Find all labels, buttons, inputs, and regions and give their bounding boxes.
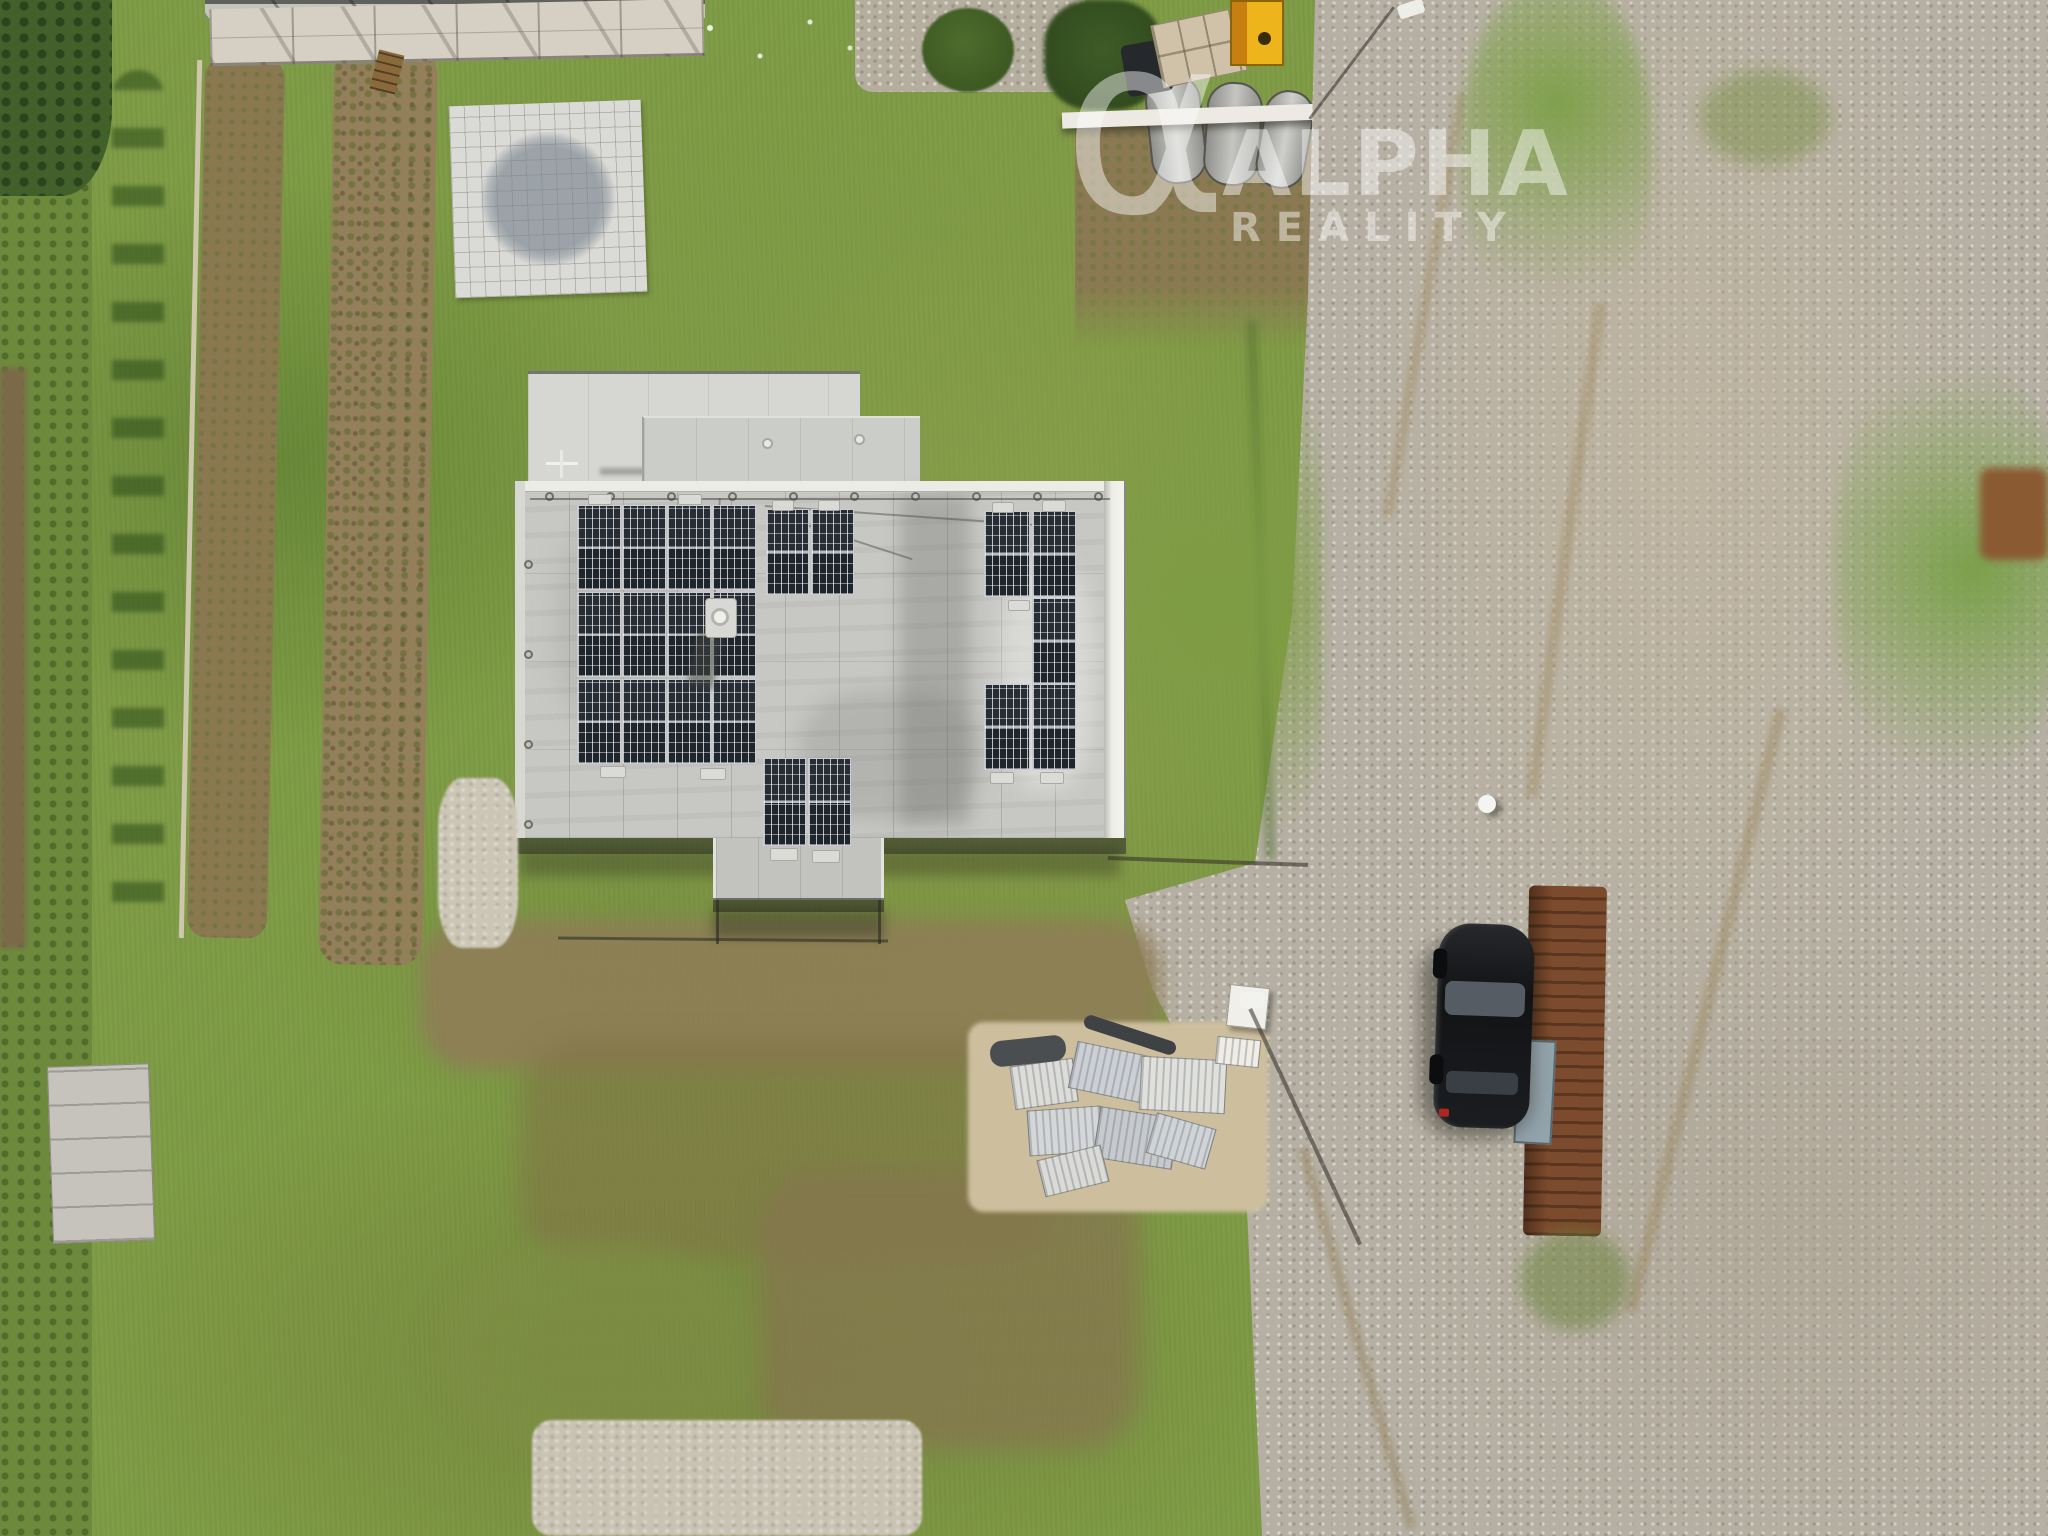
- dirt-strip-left-edge: [0, 368, 26, 948]
- solar-panel: [577, 679, 621, 764]
- flower-dots-top: [700, 8, 870, 78]
- white-slab-piece: [1215, 1036, 1262, 1068]
- panel-bracket: [812, 850, 840, 863]
- grass-strip-east-of-house: [1110, 320, 1322, 880]
- dirt-planting-band-2: [318, 49, 438, 966]
- roof-parapet-top: [515, 481, 1126, 492]
- roof-anchor: [524, 820, 533, 829]
- bush-top-center: [922, 8, 1014, 92]
- solar-panel: [622, 679, 666, 764]
- panel-bracket: [678, 494, 702, 505]
- car-windshield: [1444, 981, 1525, 1018]
- roof-vent-dot-1: [762, 438, 773, 449]
- solar-panel: [622, 592, 666, 677]
- panel-bracket: [992, 502, 1014, 513]
- solar-panel: [667, 679, 711, 764]
- wall-edge-line-right: [878, 900, 881, 944]
- watermark-title: ALPHA: [1222, 120, 1570, 210]
- roof-anchor: [524, 740, 533, 749]
- dirt-planting-band-1: [187, 57, 285, 938]
- panel-bracket: [770, 848, 798, 861]
- solar-panel: [577, 592, 621, 677]
- solar-panel: [667, 505, 711, 590]
- gravel-drain-west-of-house: [438, 778, 518, 948]
- hedge-top-left: [0, 0, 112, 196]
- solar-panel: [1032, 511, 1076, 597]
- roof-protrusion-bottom: [713, 838, 884, 900]
- shrub-row: [112, 70, 164, 940]
- solar-panel: [808, 758, 851, 846]
- weed-blob-below-rust: [1520, 1230, 1630, 1330]
- solar-panel: [1032, 684, 1076, 770]
- solar-panel: [766, 509, 809, 595]
- antenna-mast: [560, 450, 563, 478]
- roof-anchor: [524, 650, 533, 659]
- lamp-head-bottom: [1240, 992, 1264, 1008]
- weed-blob-road-top: [1700, 70, 1830, 165]
- solar-panel: [622, 505, 666, 590]
- watermark-alpha-symbol: α: [1062, 0, 1228, 252]
- gravel-patch-bottom: [532, 1420, 922, 1536]
- satellite-dish-dot: [1478, 795, 1496, 813]
- panel-bracket: [1042, 500, 1066, 512]
- panel-bracket: [588, 494, 612, 505]
- solar-panel: [712, 679, 756, 764]
- panel-bracket: [1040, 772, 1064, 784]
- grass-roadside-right: [1835, 350, 2048, 790]
- panel-bracket: [700, 768, 726, 780]
- concrete-block-wall-top: [209, 0, 704, 66]
- retaining-wall-bottom-left: [47, 1063, 155, 1243]
- solar-panel: [1032, 598, 1076, 684]
- yellow-box-hole: [1258, 32, 1271, 45]
- rust-patch-right-edge: [1980, 468, 2048, 560]
- panel-bracket: [772, 500, 794, 511]
- aerial-photo: α ALPHA REALITY: [0, 0, 2048, 1536]
- car-black: [1432, 922, 1535, 1129]
- dirt-area-bottom-2: [760, 1170, 1140, 1450]
- solar-panel: [763, 758, 806, 846]
- solar-panel: [984, 511, 1030, 597]
- paving-slab-stack: [1139, 1056, 1228, 1114]
- roof-parapet-right: [1104, 481, 1126, 838]
- car-wheel-front: [1433, 948, 1448, 978]
- car-taillight: [1439, 1108, 1449, 1116]
- car-wheel-rear: [1429, 1054, 1444, 1084]
- solar-panel: [712, 505, 756, 590]
- panel-bracket: [1008, 600, 1030, 611]
- panel-bracket: [990, 772, 1014, 784]
- watermark-subtitle: REALITY: [1230, 208, 1521, 248]
- ac-fan: [711, 608, 729, 626]
- panel-bracket: [818, 500, 840, 511]
- roof-anchor: [524, 560, 533, 569]
- solar-panel: [811, 509, 854, 595]
- yellow-utility-box: [1230, 0, 1284, 66]
- solar-panel: [984, 684, 1030, 770]
- house-upper-section-b: [642, 416, 920, 485]
- roof-vent-dot-2: [854, 434, 865, 445]
- roof-parapet-left: [515, 481, 525, 838]
- panel-bracket: [600, 766, 626, 778]
- solar-panel: [577, 505, 621, 590]
- protrusion-shadow-soft: [713, 908, 884, 938]
- patio-tiled: [449, 100, 648, 299]
- car-rear-window: [1446, 1071, 1519, 1095]
